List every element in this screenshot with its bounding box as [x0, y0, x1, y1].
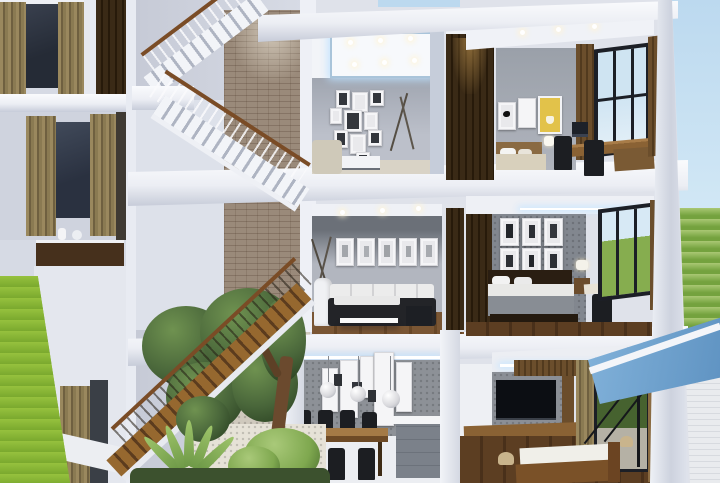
study-bedroom [494, 12, 654, 172]
window-dark [56, 122, 90, 218]
vase [72, 230, 82, 240]
gallery-frame [352, 92, 368, 112]
globe-pendant-lamp [320, 382, 336, 398]
office-chair [584, 140, 604, 176]
downlight [380, 208, 385, 213]
gallery-frame [350, 134, 366, 154]
ground-cover-strip [130, 468, 330, 483]
downlight [352, 62, 357, 67]
sofa-seat-cushion [334, 296, 400, 305]
sketch-mark [426, 245, 432, 257]
dining-chair [340, 410, 355, 430]
dining-chair [358, 448, 375, 480]
framed-print [399, 238, 417, 266]
bed-blanket [496, 154, 546, 170]
downlight [378, 38, 383, 43]
pendant-cord [358, 356, 359, 386]
round-stool [620, 436, 633, 447]
tall-art-panel [374, 352, 394, 426]
curtain-panel [0, 2, 26, 96]
bed-blanket [488, 296, 574, 316]
bird-glyph [503, 111, 510, 117]
dry-branch-decor [399, 97, 414, 150]
sketch-mark [406, 246, 411, 257]
side-table-black [406, 306, 432, 326]
gallery-frame [368, 130, 382, 146]
round-stool [498, 452, 514, 465]
gallery-frame [336, 90, 350, 108]
sideboard [36, 240, 124, 266]
curtain-panel [26, 116, 56, 236]
gallery-frame [370, 90, 384, 106]
desktop-monitor [572, 122, 588, 137]
pendant-cord [390, 356, 391, 390]
downlight [408, 36, 413, 41]
sketch-mark [384, 245, 390, 257]
animal-poster [522, 218, 541, 246]
globe-pendant-lamp [350, 386, 366, 402]
downlight [592, 24, 597, 29]
framed-print [357, 238, 375, 266]
nightstand-lamp [576, 260, 588, 270]
vase [58, 228, 66, 240]
framed-print [336, 238, 354, 266]
bedroom-window [598, 203, 654, 302]
bird-poster [498, 102, 516, 130]
animal-mark [529, 225, 535, 238]
gallery-frame [364, 112, 378, 130]
downlight [412, 58, 417, 63]
animal-mark [550, 254, 557, 268]
downlight [520, 30, 525, 35]
window-mullion [634, 209, 637, 293]
animal-mark [506, 255, 513, 267]
bedroom-floor [466, 322, 652, 336]
table-leg [378, 442, 382, 476]
yellow-poster [538, 96, 562, 134]
small-dark-frame [334, 374, 342, 386]
animal-poster [544, 218, 563, 246]
window-mullion [631, 49, 634, 149]
animal-mark [529, 255, 534, 267]
window-mullion [616, 211, 619, 295]
animal-mark [550, 224, 557, 238]
pendant-cord [328, 356, 329, 382]
curtain-panel [90, 114, 116, 236]
animal-mark [506, 224, 513, 238]
tall-art-panel [396, 362, 412, 412]
globe-pendant-lamp [382, 390, 400, 408]
downlight [348, 40, 353, 45]
downlight [382, 60, 387, 65]
framed-print [378, 238, 396, 266]
coffee-table [340, 318, 398, 323]
sketch-mark [364, 246, 369, 257]
framed-print [420, 238, 438, 266]
daybed-frame [516, 459, 617, 483]
gallery-frame [330, 108, 342, 124]
sketch-mark [342, 245, 348, 257]
daybed-footboard [608, 442, 620, 482]
structural-column [440, 330, 460, 483]
gallery-frame [344, 110, 362, 132]
downlight [340, 210, 345, 215]
office-chair [554, 136, 572, 170]
dining-chair [328, 448, 345, 480]
table-lamp [544, 136, 554, 146]
architectural-cutaway-render [0, 0, 720, 483]
cup-graphic [546, 116, 554, 124]
gallery-lounge [312, 20, 444, 174]
downlight [416, 206, 421, 211]
living-ceiling [312, 204, 444, 216]
left-floor-slab [0, 94, 136, 114]
small-dark-frame [368, 390, 376, 402]
wood-door [446, 208, 464, 330]
sky-gap-above-roof [378, 0, 460, 7]
white-poster [518, 98, 536, 128]
window-transom [598, 93, 646, 102]
downlight [556, 27, 561, 32]
window-mullion [613, 51, 616, 151]
curtain-panel [58, 2, 86, 94]
animal-poster [500, 218, 519, 246]
wall-mounted-tv [496, 380, 556, 420]
beige-armchair [312, 140, 342, 174]
window-dark [26, 4, 58, 88]
wall-band [430, 28, 444, 174]
